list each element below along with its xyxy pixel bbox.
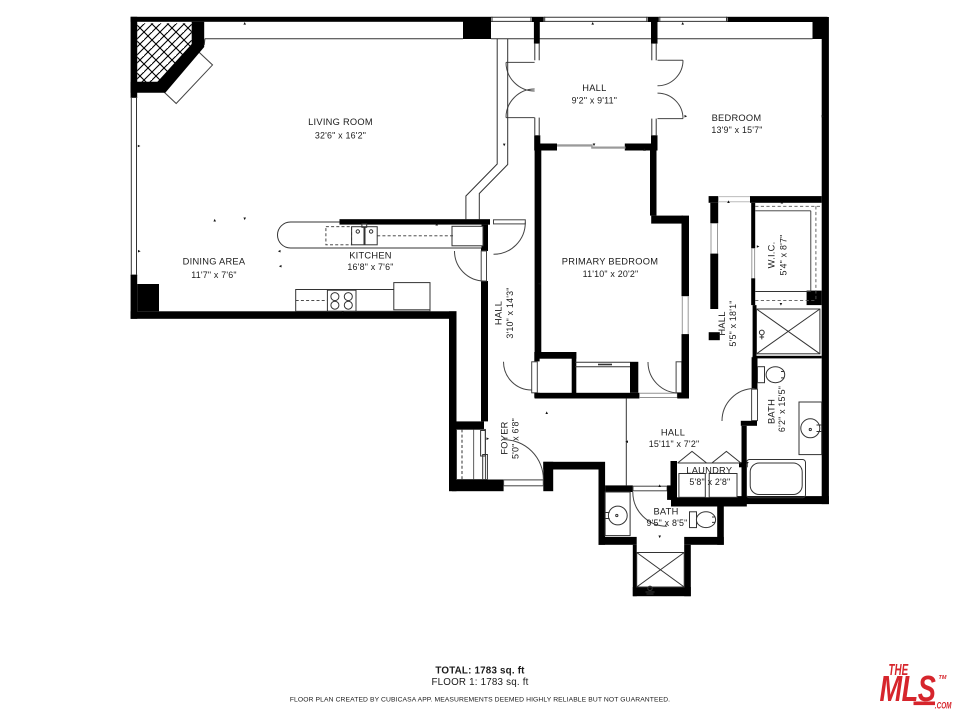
svg-text:BATH: BATH (653, 507, 678, 517)
svg-text:BEDROOM: BEDROOM (712, 113, 762, 123)
svg-text:FOYER: FOYER (499, 421, 509, 454)
svg-text:11'7" x 7'6": 11'7" x 7'6" (191, 270, 236, 280)
svg-text:5'0" x 6'8": 5'0" x 6'8" (511, 418, 521, 459)
svg-text:HALL: HALL (494, 301, 504, 325)
svg-text:11'10" x 20'2": 11'10" x 20'2" (583, 269, 639, 279)
svg-text:LAUNDRY: LAUNDRY (686, 466, 732, 476)
svg-text:9'5" x 8'5": 9'5" x 8'5" (646, 518, 687, 528)
svg-text:HALL: HALL (582, 83, 606, 93)
svg-text:FLOOR PLAN CREATED BY CUBICASA: FLOOR PLAN CREATED BY CUBICASA APP. MEAS… (290, 697, 670, 704)
svg-text:TM: TM (939, 675, 947, 681)
svg-text:KITCHEN: KITCHEN (349, 251, 392, 261)
svg-text:HALL: HALL (717, 311, 727, 335)
svg-text:5'4" x 8'7": 5'4" x 8'7" (778, 234, 788, 275)
svg-text:DINING AREA: DINING AREA (183, 257, 246, 267)
svg-text:6'2" x 15'5": 6'2" x 15'5" (777, 386, 787, 432)
svg-text:5'8" x 2'8": 5'8" x 2'8" (689, 477, 730, 487)
svg-text:TOTAL: 1783 sq. ft: TOTAL: 1783 sq. ft (435, 666, 525, 677)
svg-text:5'5" x 18'1": 5'5" x 18'1" (728, 300, 738, 346)
svg-text:.COM: .COM (935, 700, 952, 710)
svg-text:W.I.C.: W.I.C. (767, 242, 777, 269)
svg-text:16'8" x 7'6": 16'8" x 7'6" (347, 262, 393, 272)
svg-text:13'9" x 15'7": 13'9" x 15'7" (711, 125, 762, 135)
svg-text:PRIMARY BEDROOM: PRIMARY BEDROOM (562, 257, 658, 267)
svg-text:15'11" x 7'2": 15'11" x 7'2" (649, 439, 700, 449)
svg-text:BATH: BATH (767, 399, 777, 424)
svg-text:3'10" x 14'3": 3'10" x 14'3" (505, 287, 515, 338)
svg-text:LIVING ROOM: LIVING ROOM (308, 117, 373, 127)
svg-text:FLOOR 1: 1783 sq. ft: FLOOR 1: 1783 sq. ft (431, 677, 528, 688)
svg-text:32'6" x 16'2": 32'6" x 16'2" (315, 131, 366, 141)
svg-text:9'2" x 9'11": 9'2" x 9'11" (572, 96, 617, 106)
svg-text:HALL: HALL (661, 428, 685, 438)
